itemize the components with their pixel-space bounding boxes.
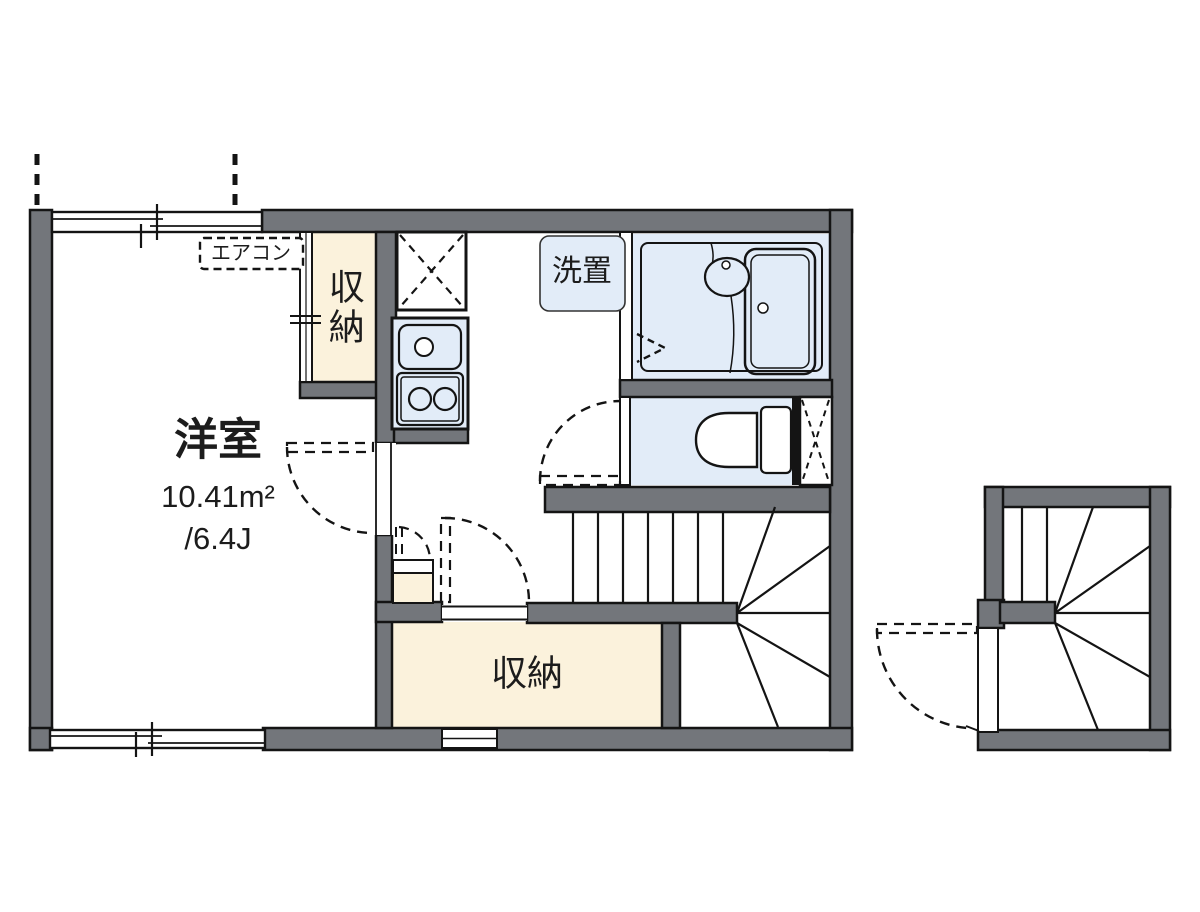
entry-door-swing: [877, 629, 967, 728]
basin-faucet-icon: [722, 261, 730, 269]
detached-newel: [1000, 602, 1055, 623]
detached-bottom-wall: [978, 730, 1170, 750]
bath-bottom-wall: [620, 380, 832, 397]
toilet-left-wall: [620, 397, 630, 485]
lower-closet-label: 収納: [491, 652, 563, 693]
left-wall: [30, 210, 52, 750]
mid-wall-lower: [376, 535, 392, 728]
toilet-tank-icon: [761, 407, 791, 473]
top-wall: [262, 210, 852, 232]
kitchen-unit: [392, 318, 468, 429]
washer-space-label: 洗置: [552, 255, 612, 290]
detached-left-wall: [985, 487, 1003, 604]
detached-right-wall: [1150, 487, 1170, 750]
stairs-mid-wall: [527, 603, 737, 623]
bottom-wall-corner: [30, 728, 52, 750]
detached-top-wall: [985, 487, 1170, 507]
hall-stairs-wall: [545, 487, 830, 512]
floor-plan: 洋室 10.41m² /6.4J 収納 洗置 エアコン 収納: [0, 0, 1200, 912]
upper-floor-projection: [37, 154, 235, 211]
storage-right-wall: [662, 623, 680, 728]
right-wall: [830, 210, 852, 750]
toilet-room: [696, 407, 791, 473]
hall-cabinet: [393, 560, 433, 603]
entry-door-leaf: [877, 624, 977, 633]
main-room-label: 洋室: [174, 416, 262, 467]
detached-entry-wall: [978, 628, 998, 732]
room-door-opening: [372, 443, 396, 535]
main-room-area-sqm: 10.41m²: [161, 479, 275, 515]
sink-drain-icon: [415, 338, 433, 356]
toilet-icon: [696, 413, 757, 467]
bottom-wall: [263, 728, 852, 750]
bathtub-drain-icon: [758, 303, 768, 313]
air-conditioner-label: エアコン: [211, 243, 291, 266]
pipe-space-icon: [800, 397, 832, 485]
upper-closet-label: 収納: [323, 268, 364, 348]
refrigerator-space-icon: [397, 232, 466, 310]
main-room-area-tatami: /6.4J: [184, 521, 251, 557]
hall-bottom-wall: [376, 602, 442, 622]
